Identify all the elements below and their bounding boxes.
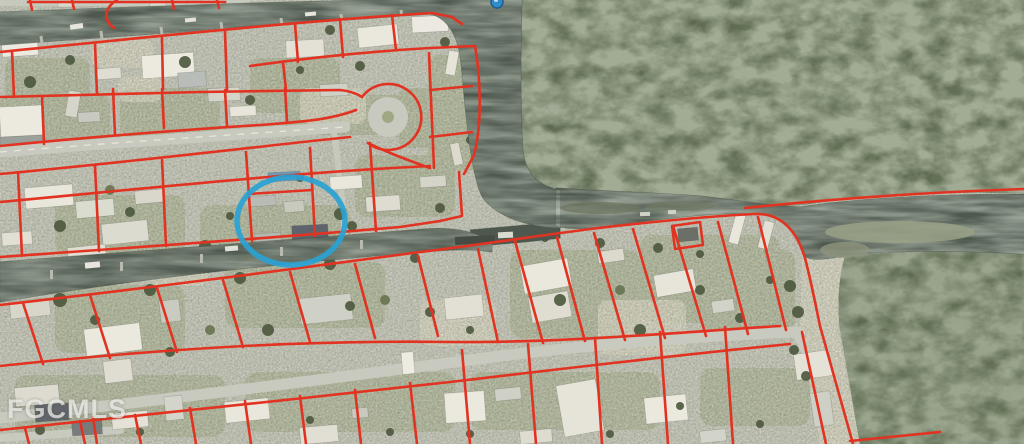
map-viewport[interactable]: FGCMLS: [0, 0, 1024, 444]
aerial-imagery: [0, 0, 1024, 444]
watermark: FGCMLS: [7, 394, 127, 425]
cul-de-sac-island: [382, 111, 394, 123]
map-pin-icon[interactable]: [491, 0, 503, 8]
